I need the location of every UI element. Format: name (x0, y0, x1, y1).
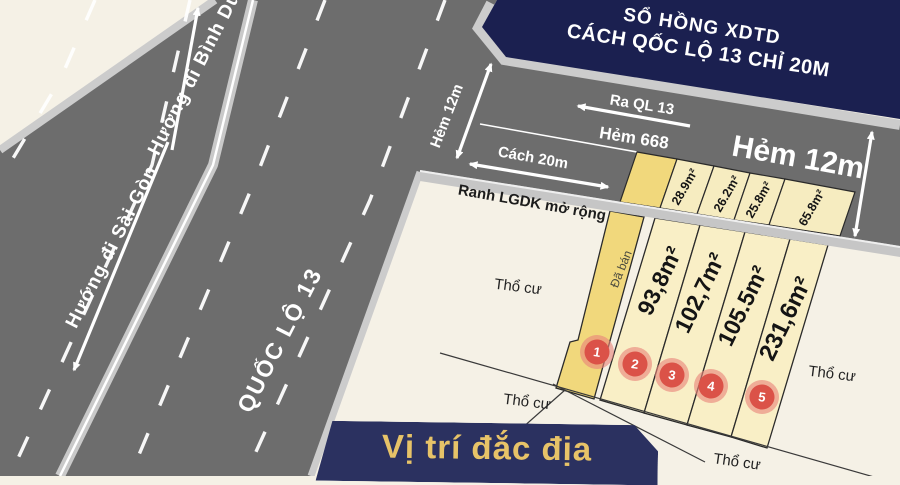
plot-5-number: 5 (757, 389, 766, 405)
plot-4-number: 4 (706, 378, 715, 394)
plot-1-number: 1 (592, 344, 601, 360)
bottom-banner-text: Vị trí đắc địa (382, 428, 593, 469)
bottom-banner: Vị trí đắc địa (316, 421, 659, 485)
land-plot-map: SỔ HỒNG XDTD CÁCH QỐC LỘ 13 CHỈ 20M QUỐC… (0, 0, 900, 476)
plot-2-number: 2 (630, 356, 639, 372)
plot-3-number: 3 (667, 367, 676, 383)
